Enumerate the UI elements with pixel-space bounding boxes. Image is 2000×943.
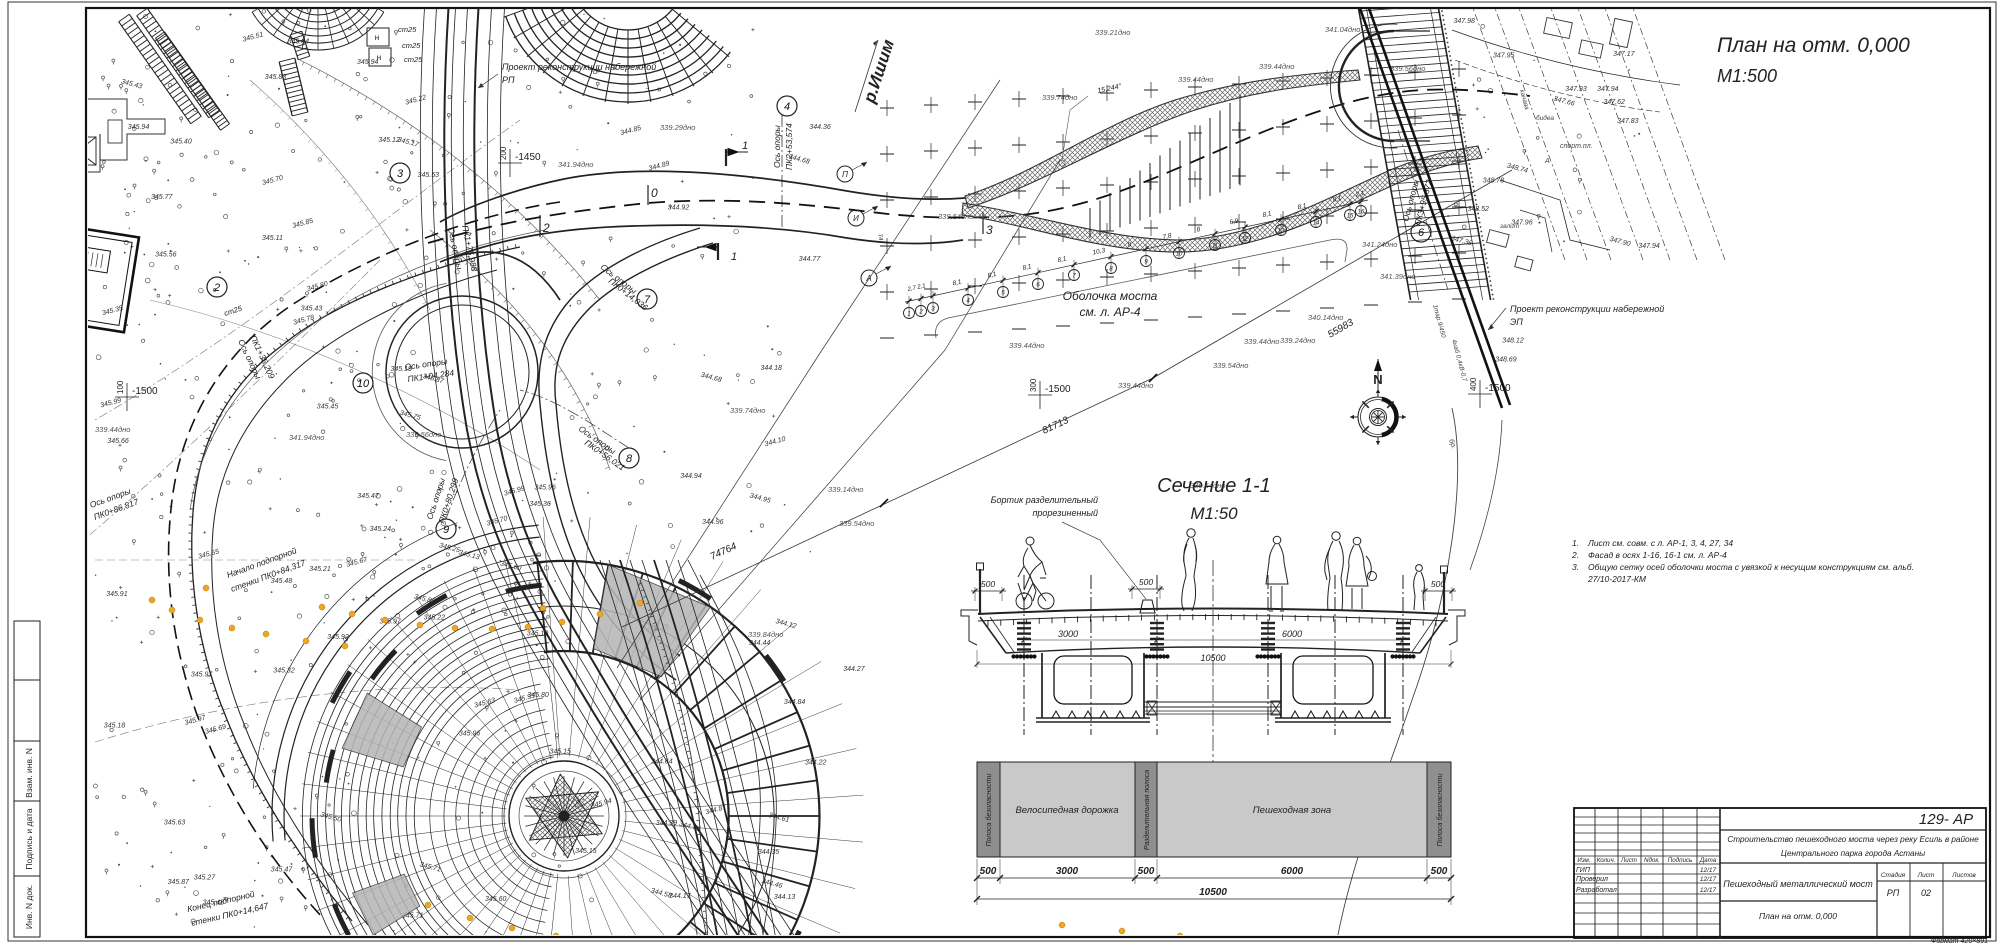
svg-text:Листов: Листов [1951, 872, 1976, 879]
svg-text:339.44дно: 339.44дно [1009, 341, 1044, 350]
svg-text:прорезиненный: прорезиненный [1032, 508, 1098, 518]
svg-text:3000: 3000 [1056, 866, 1079, 877]
svg-text:500: 500 [1431, 866, 1448, 877]
svg-text:РП: РП [1887, 888, 1900, 898]
svg-text:345.94: 345.94 [128, 124, 150, 131]
svg-text:залит: залит [1499, 223, 1520, 230]
svg-text:345.43: 345.43 [301, 306, 323, 313]
svg-text:345.48: 345.48 [271, 578, 293, 585]
svg-text:Инв. N док.: Инв. N док. [24, 885, 34, 929]
svg-text:0: 0 [651, 186, 658, 200]
svg-text:М1:50: М1:50 [1190, 504, 1238, 523]
svg-text:Сечение 1-1: Сечение 1-1 [1157, 475, 1271, 497]
svg-text:12: 12 [1242, 237, 1249, 243]
svg-text:3: 3 [397, 168, 404, 180]
svg-text:-1500: -1500 [132, 386, 158, 397]
svg-text:13: 13 [1278, 229, 1285, 235]
svg-text:339.54дно: 339.54дно [839, 519, 874, 528]
svg-text:345.77: 345.77 [151, 194, 174, 201]
svg-text:347.98: 347.98 [1454, 18, 1476, 25]
svg-text:345.87: 345.87 [168, 879, 191, 886]
svg-text:М1:500: М1:500 [1717, 66, 1777, 86]
svg-text:4: 4 [784, 101, 790, 113]
svg-text:345.22: 345.22 [424, 615, 446, 622]
svg-text:Подпись и дата: Подпись и дата [24, 808, 34, 869]
svg-text:339.84дно: 339.84дно [748, 630, 783, 639]
svg-text:1: 1 [731, 251, 737, 263]
svg-text:П: П [842, 170, 848, 179]
svg-text:10500: 10500 [1200, 653, 1225, 663]
svg-text:344.13: 344.13 [774, 894, 796, 901]
svg-text:339.54дно: 339.54дно [1213, 361, 1248, 370]
svg-text:500: 500 [1431, 579, 1445, 589]
svg-text:Взам. инв. N: Взам. инв. N [24, 748, 34, 798]
svg-text:Проверил: Проверил [1576, 876, 1608, 883]
svg-text:Полоса безопасности: Полоса безопасности [985, 773, 993, 846]
svg-text:Изм.: Изм. [1577, 857, 1590, 864]
svg-text:10: 10 [357, 378, 370, 390]
svg-text:345.47: 345.47 [357, 493, 380, 500]
svg-text:-1500: -1500 [1045, 384, 1071, 395]
svg-text:16: 16 [1358, 210, 1365, 216]
svg-text:Nдок.: Nдок. [1644, 857, 1660, 864]
svg-text:345.11: 345.11 [262, 235, 283, 242]
svg-text:Строительство пешеходного мост: Строительство пешеходного моста через ре… [1727, 835, 1979, 844]
svg-text:344.77: 344.77 [799, 256, 822, 263]
svg-text:А: А [865, 274, 871, 283]
svg-text:345.47: 345.47 [271, 866, 294, 873]
svg-text:6000: 6000 [1282, 629, 1302, 639]
svg-text:339.24дно: 339.24дно [1280, 336, 1315, 345]
svg-text:Проект реконструкции набережно: Проект реконструкции набережной [1510, 304, 1664, 314]
svg-text:10500: 10500 [1199, 887, 1227, 898]
svg-text:341.94дно: 341.94дно [289, 433, 324, 442]
svg-text:340.14дно: 340.14дно [1308, 313, 1343, 322]
svg-text:347.93: 347.93 [1565, 86, 1587, 93]
svg-text:План на отм. 0,000: План на отм. 0,000 [1717, 34, 1910, 57]
svg-text:Разделительная полоса: Разделительная полоса [1143, 770, 1151, 850]
svg-text:339.44дно: 339.44дно [1178, 75, 1213, 84]
svg-text:Лист: Лист [1917, 872, 1935, 879]
svg-text:341.39дно: 341.39дно [1380, 272, 1415, 281]
svg-text:ст25: ст25 [404, 55, 423, 64]
svg-text:339.74дно: 339.74дно [730, 406, 765, 415]
svg-text:1: 1 [742, 140, 748, 152]
svg-text:347.17: 347.17 [1613, 51, 1636, 58]
svg-text:345.56: 345.56 [155, 252, 177, 259]
svg-text:02: 02 [1921, 888, 1931, 898]
svg-text:Формат 420×891: Формат 420×891 [1931, 938, 1988, 943]
svg-text:ст25: ст25 [398, 25, 417, 34]
svg-text:345.63: 345.63 [164, 820, 186, 827]
svg-text:27/10-2017-КМ: 27/10-2017-КМ [1587, 574, 1647, 584]
svg-text:см. л. АР-4: см. л. АР-4 [1079, 305, 1140, 319]
svg-text:347.95: 347.95 [1493, 53, 1515, 60]
svg-text:План на отм. 0,000: План на отм. 0,000 [1759, 911, 1837, 921]
svg-text:Стадия: Стадия [1881, 871, 1906, 879]
svg-text:12/17: 12/17 [1700, 867, 1717, 874]
svg-text:341.24дно: 341.24дно [1362, 240, 1397, 249]
svg-text:500: 500 [981, 579, 995, 589]
svg-text:400: 400 [1469, 377, 1478, 391]
svg-text:Пешеходный металлический мост: Пешеходный металлический мост [1723, 879, 1873, 889]
svg-text:Бортик разделительный: Бортик разделительный [991, 495, 1098, 505]
svg-text:339.44дно: 339.44дно [95, 425, 130, 434]
svg-text:345.60: 345.60 [485, 896, 507, 903]
svg-text:129- АР: 129- АР [1919, 811, 1973, 828]
svg-text:15: 15 [1347, 214, 1354, 220]
svg-text:Подпись: Подпись [1668, 857, 1693, 864]
svg-text:3000: 3000 [1058, 629, 1078, 639]
svg-text:н: н [377, 53, 381, 62]
svg-text:ЭП: ЭП [1510, 317, 1523, 327]
svg-text:345.66: 345.66 [107, 438, 129, 445]
svg-text:345.94: 345.94 [357, 59, 379, 66]
svg-text:344.92: 344.92 [668, 205, 690, 212]
svg-text:Колич.: Колич. [1597, 857, 1616, 864]
svg-text:345.21: 345.21 [309, 566, 331, 573]
svg-text:Велосипедная дорожка: Велосипедная дорожка [1015, 805, 1118, 816]
svg-text:3: 3 [986, 223, 993, 237]
svg-text:2: 2 [213, 282, 220, 294]
svg-text:344.94: 344.94 [680, 473, 702, 480]
svg-text:339.14дно: 339.14дно [828, 485, 863, 494]
svg-text:Проект реконструкции набережно: Проект реконструкции набережной [502, 62, 656, 72]
svg-text:н: н [375, 33, 379, 42]
svg-text:ст25: ст25 [402, 41, 421, 50]
svg-text:N: N [1373, 372, 1382, 387]
svg-text:бидеа: бидеа [1536, 114, 1554, 122]
svg-text:344.18: 344.18 [761, 365, 783, 372]
svg-text:ПК2+53,574: ПК2+53,574 [784, 123, 794, 170]
svg-text:339.44дно: 339.44дно [1118, 381, 1153, 390]
svg-text:345.96: 345.96 [459, 730, 481, 737]
svg-text:348.69: 348.69 [1495, 356, 1517, 363]
svg-text:345.18: 345.18 [104, 722, 126, 729]
svg-text:500: 500 [1138, 866, 1155, 877]
svg-text:200: 200 [499, 146, 508, 160]
svg-text:РП: РП [502, 75, 515, 85]
svg-text:339.29дно: 339.29дно [660, 123, 695, 132]
svg-text:344.22: 344.22 [805, 760, 827, 767]
svg-text:9: 9 [443, 524, 449, 536]
svg-text:500: 500 [980, 866, 997, 877]
svg-text:-1500: -1500 [1485, 383, 1511, 394]
svg-text:12/17: 12/17 [1700, 887, 1717, 894]
svg-text:339.74дно: 339.74дно [1042, 93, 1077, 102]
svg-text:Фасад в осях 1-16, 16-1 см. л.: Фасад в осях 1-16, 16-1 см. л. АР-4 [1588, 550, 1727, 560]
svg-text:345.24: 345.24 [370, 526, 392, 533]
svg-text:345.12: 345.12 [378, 137, 400, 144]
svg-text:Дата: Дата [1699, 857, 1717, 864]
svg-text:345.36: 345.36 [529, 501, 551, 508]
svg-text:1.: 1. [1572, 538, 1579, 548]
svg-text:Ось опоры: Ось опоры [772, 124, 782, 168]
svg-text:Оболочка моста: Оболочка моста [1063, 289, 1158, 303]
svg-text:Лист: Лист [1620, 857, 1637, 864]
svg-text:2.: 2. [1571, 550, 1579, 560]
svg-text:345.45: 345.45 [317, 404, 339, 411]
svg-text:Разработал: Разработал [1576, 886, 1617, 894]
svg-text:Полоса безопасности: Полоса безопасности [1436, 773, 1444, 846]
svg-text:10: 10 [1176, 252, 1183, 258]
svg-text:345.15: 345.15 [550, 749, 572, 756]
svg-text:345.27: 345.27 [194, 874, 217, 881]
svg-text:Пешеходная зона: Пешеходная зона [1253, 805, 1331, 816]
svg-text:Лист см. совм. с л. АР-1, 3, 4: Лист см. совм. с л. АР-1, 3, 4, 27, 34 [1587, 538, 1733, 548]
svg-text:100: 100 [116, 380, 125, 394]
svg-text:339.21дно: 339.21дно [1095, 28, 1130, 37]
svg-text:345.32: 345.32 [273, 668, 295, 675]
svg-text:348.12: 348.12 [1502, 338, 1524, 345]
svg-text:ГИП: ГИП [1576, 867, 1591, 874]
svg-text:14: 14 [1313, 221, 1320, 227]
svg-text:339.44дно: 339.44дно [1259, 62, 1294, 71]
svg-text:Центрального парка города Аста: Центрального парка города Астаны [1781, 849, 1925, 858]
svg-text:345.40: 345.40 [170, 139, 192, 146]
svg-text:345.15: 345.15 [575, 848, 597, 855]
svg-text:2: 2 [542, 221, 550, 235]
svg-text:спорт.пл.: спорт.пл. [1560, 143, 1593, 150]
svg-text:339.44дно: 339.44дно [1244, 337, 1279, 346]
svg-text:3.: 3. [1572, 562, 1579, 572]
svg-text:347.94: 347.94 [1638, 243, 1660, 250]
svg-text:500: 500 [1139, 577, 1153, 587]
svg-text:12/17: 12/17 [1700, 876, 1717, 883]
svg-text:345.91: 345.91 [106, 591, 128, 598]
svg-text:300: 300 [1029, 378, 1038, 392]
svg-text:А: А [1544, 158, 1550, 165]
svg-text:344.35: 344.35 [758, 849, 780, 856]
svg-text:344.36: 344.36 [809, 124, 831, 131]
svg-text:341.94дно: 341.94дно [558, 160, 593, 169]
svg-text:344.27: 344.27 [843, 666, 866, 673]
svg-text:341.04дно: 341.04дно [1325, 25, 1360, 34]
svg-text:-1450: -1450 [515, 152, 541, 163]
svg-text:Общую сетку осей оболочки мост: Общую сетку осей оболочки моста с увязко… [1588, 562, 1914, 572]
svg-text:344.96: 344.96 [702, 519, 724, 526]
svg-text:6000: 6000 [1281, 866, 1304, 877]
svg-text:И: И [853, 214, 859, 223]
